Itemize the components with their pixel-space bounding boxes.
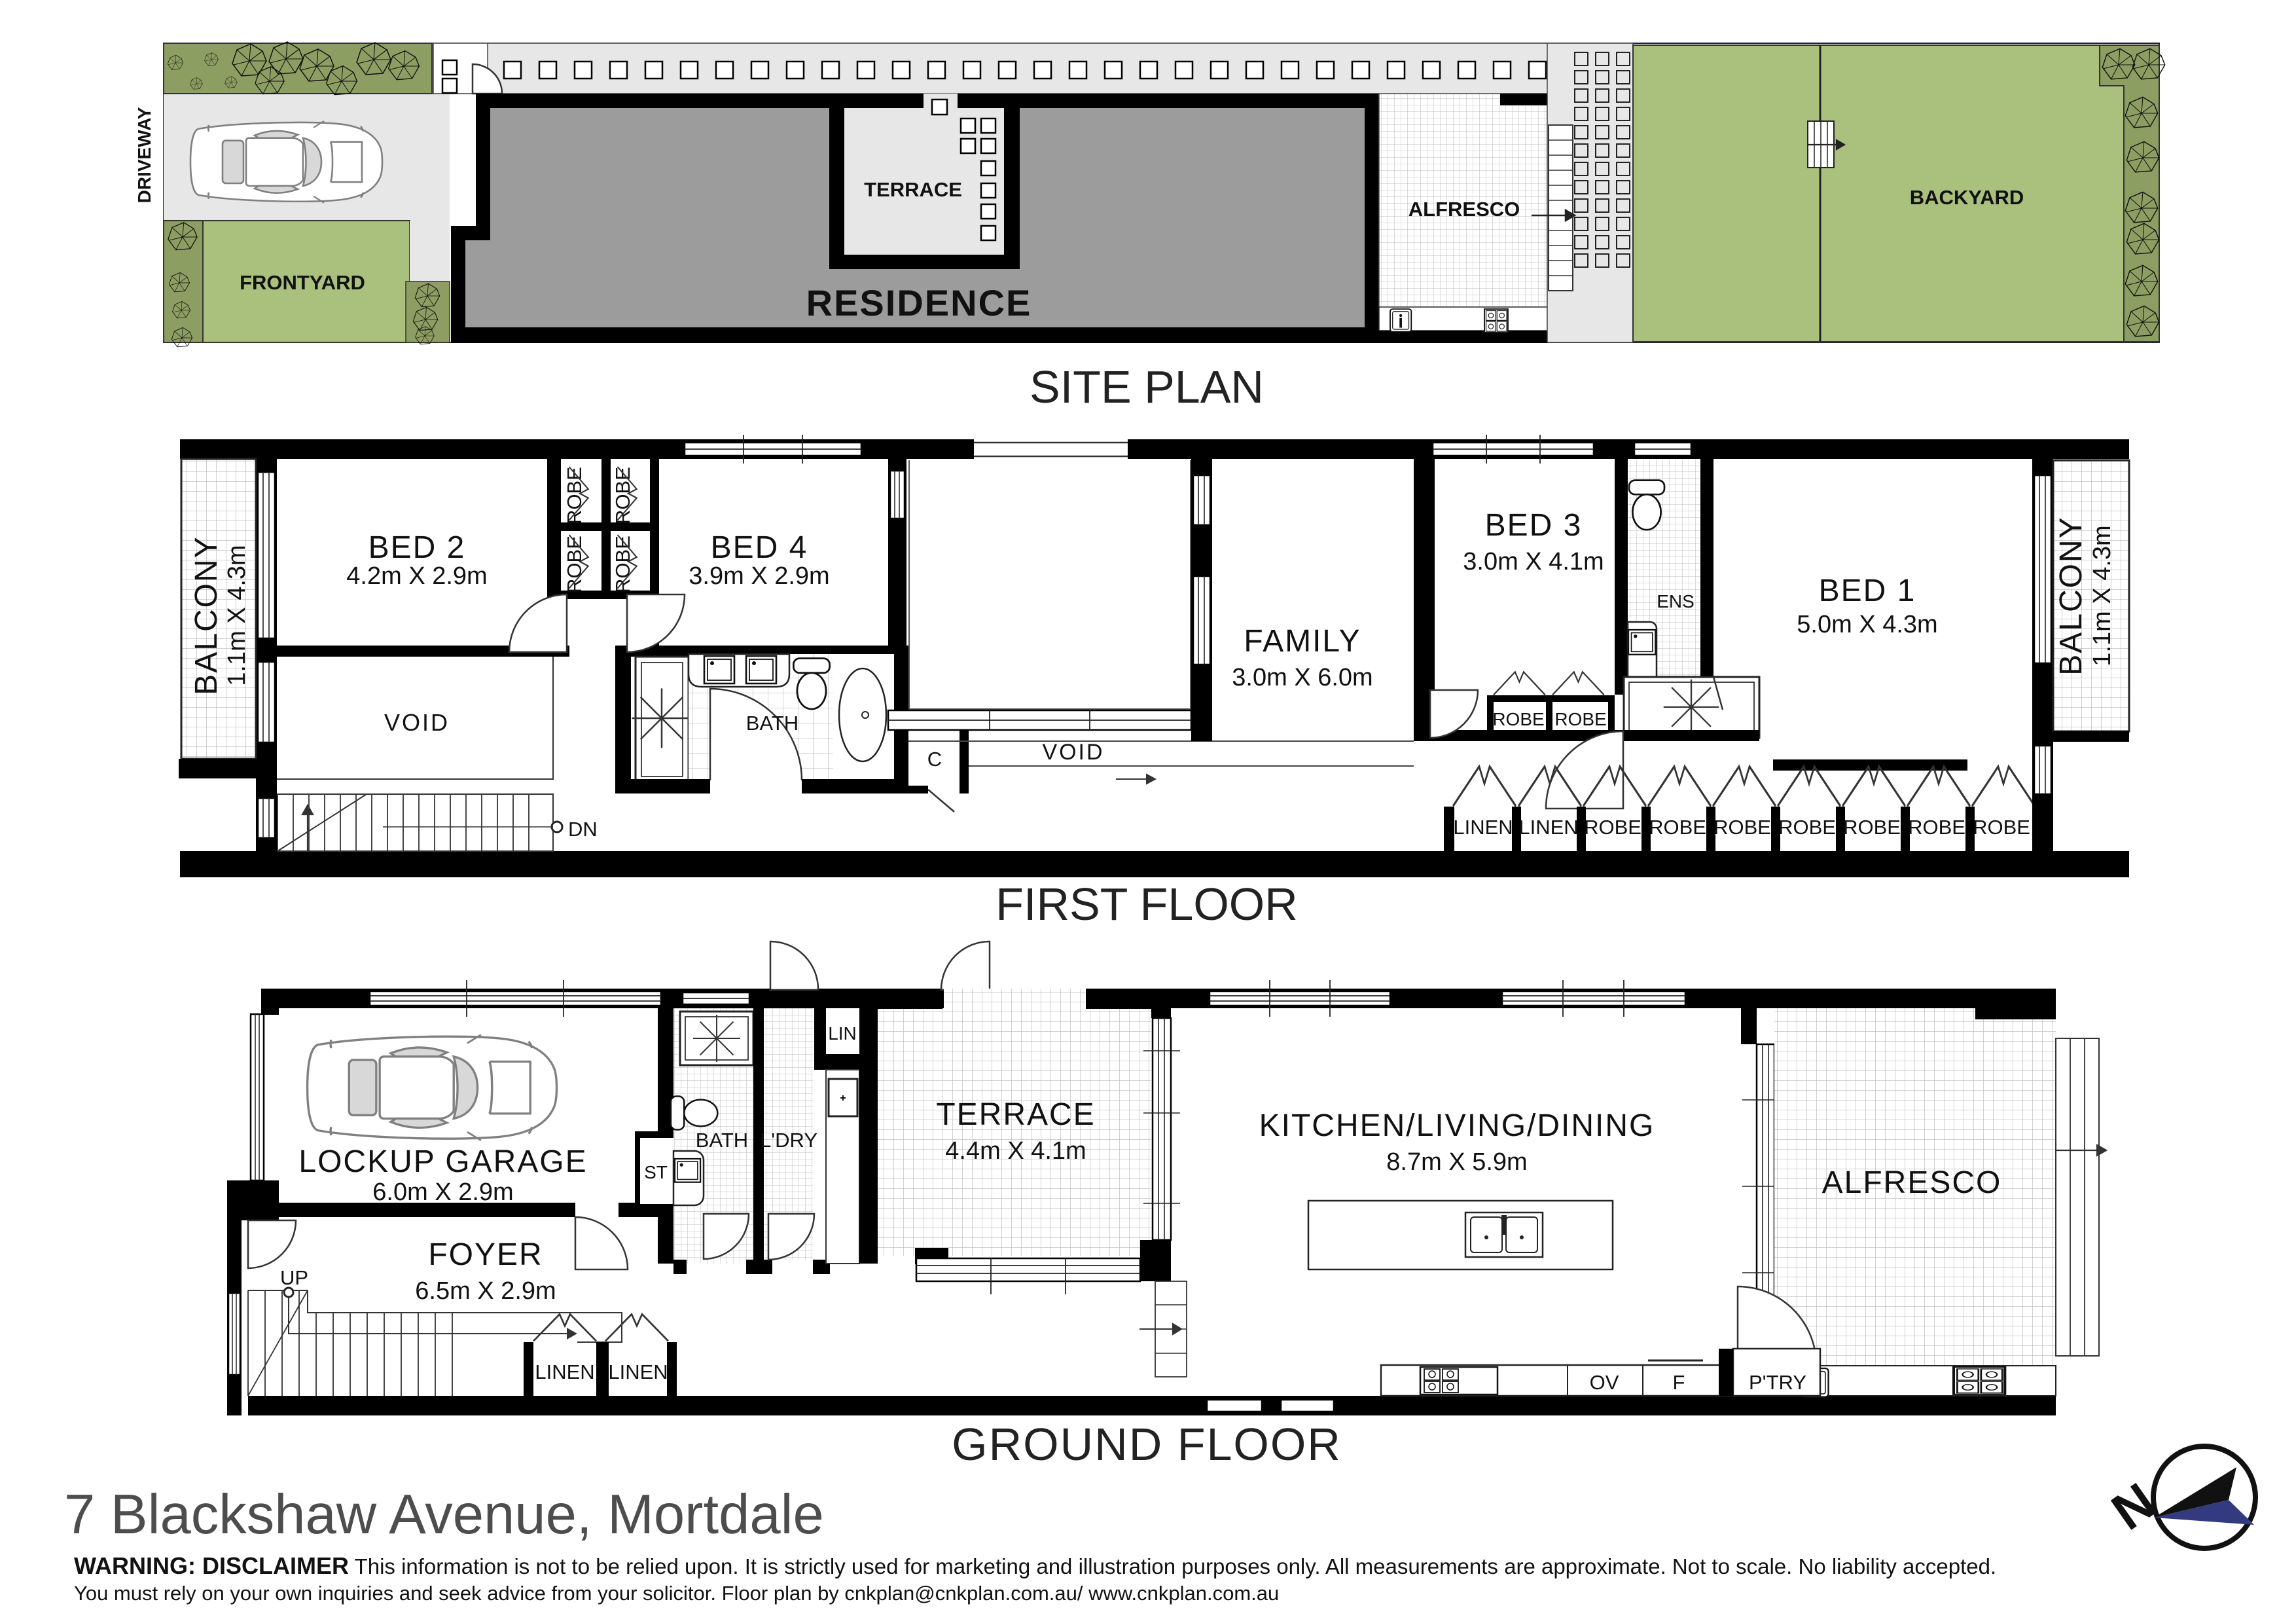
svg-text:RESIDENCE: RESIDENCE (806, 282, 1032, 323)
svg-text:ST: ST (644, 1162, 668, 1182)
svg-text:1.1m X 4.3m: 1.1m X 4.3m (2089, 525, 2116, 666)
svg-text:5.0m X 4.3m: 5.0m X 4.3m (1797, 611, 1937, 638)
svg-text:LINEN: LINEN (608, 1360, 668, 1383)
svg-text:OV: OV (1590, 1371, 1619, 1394)
svg-text:F: F (1673, 1371, 1685, 1394)
svg-text:3.9m X 2.9m: 3.9m X 2.9m (689, 562, 829, 590)
svg-text:BED 3: BED 3 (1485, 508, 1583, 543)
svg-text:LINEN: LINEN (535, 1360, 594, 1383)
svg-text:BATH: BATH (746, 712, 798, 735)
svg-text:LOCKUP GARAGE: LOCKUP GARAGE (298, 1144, 587, 1179)
svg-text:DN: DN (568, 818, 598, 841)
svg-text:ENS: ENS (1657, 591, 1695, 611)
svg-text:FOYER: FOYER (428, 1237, 543, 1272)
svg-text:3.0m X 4.1m: 3.0m X 4.1m (1463, 548, 1604, 575)
svg-text:7 Blackshaw Avenue, Mortdale: 7 Blackshaw Avenue, Mortdale (64, 1484, 824, 1546)
svg-text:ROBE: ROBE (1554, 709, 1606, 729)
svg-text:LINEN: LINEN (1518, 816, 1578, 839)
svg-text:4.4m X 4.1m: 4.4m X 4.1m (945, 1137, 1086, 1165)
svg-text:6.0m X 2.9m: 6.0m X 2.9m (372, 1178, 513, 1206)
svg-text:3.0m X 6.0m: 3.0m X 6.0m (1232, 664, 1372, 691)
svg-text:8.7m X 5.9m: 8.7m X 5.9m (1386, 1148, 1527, 1176)
svg-text:FRONTYARD: FRONTYARD (240, 271, 365, 294)
svg-text:ROBE: ROBE (1649, 816, 1706, 839)
svg-text:WARNING: DISCLAIMER This infor: WARNING: DISCLAIMER This information is … (74, 1552, 1996, 1579)
svg-text:ROBE: ROBE (1492, 709, 1544, 729)
svg-text:BALCONY: BALCONY (2054, 516, 2089, 675)
svg-text:C: C (927, 748, 942, 771)
svg-text:VOID: VOID (1042, 740, 1104, 765)
svg-text:VOID: VOID (384, 709, 450, 736)
svg-text:GROUND FLOOR: GROUND FLOOR (952, 1419, 1342, 1470)
svg-text:4.2m X 2.9m: 4.2m X 2.9m (346, 562, 487, 590)
svg-text:TERRACE: TERRACE (864, 178, 962, 201)
svg-text:LIN: LIN (828, 1023, 857, 1044)
svg-text:ROBE: ROBE (611, 536, 634, 593)
svg-text:6.5m X 2.9m: 6.5m X 2.9m (415, 1277, 556, 1305)
svg-text:TERRACE: TERRACE (936, 1097, 1095, 1132)
svg-text:ROBE: ROBE (1908, 816, 1965, 839)
svg-text:SITE PLAN: SITE PLAN (1030, 361, 1264, 412)
svg-text:DRIVEWAY: DRIVEWAY (134, 107, 154, 203)
svg-text:ALFRESCO: ALFRESCO (1822, 1165, 2002, 1200)
svg-text:ROBE: ROBE (1713, 816, 1771, 839)
svg-text:BED 1: BED 1 (1819, 574, 1916, 608)
svg-text:FAMILY: FAMILY (1244, 624, 1361, 659)
svg-text:ROBE: ROBE (1778, 816, 1836, 839)
svg-text:LINEN: LINEN (1453, 816, 1513, 839)
svg-text:ROBE: ROBE (1843, 816, 1901, 839)
svg-text:L'DRY: L'DRY (760, 1129, 817, 1152)
svg-text:BED 2: BED 2 (368, 530, 466, 565)
svg-text:You must rely on your own inqu: You must rely on your own inquiries and … (74, 1582, 1279, 1605)
svg-text:BATH: BATH (696, 1129, 748, 1152)
svg-text:BALCONY: BALCONY (189, 536, 224, 695)
svg-text:BACKYARD: BACKYARD (1910, 186, 2024, 209)
svg-text:UP: UP (280, 1266, 308, 1289)
svg-text:1.1m X 4.3m: 1.1m X 4.3m (223, 545, 251, 685)
svg-text:P'TRY: P'TRY (1749, 1371, 1806, 1394)
svg-text:ROBE: ROBE (1973, 816, 2030, 839)
svg-text:FIRST FLOOR: FIRST FLOOR (996, 879, 1298, 930)
svg-text:ROBE: ROBE (1584, 816, 1641, 839)
svg-text:ROBE: ROBE (563, 536, 586, 593)
svg-text:KITCHEN/LIVING/DINING: KITCHEN/LIVING/DINING (1259, 1108, 1655, 1143)
svg-text:ALFRESCO: ALFRESCO (1408, 198, 1520, 221)
svg-text:BED 4: BED 4 (711, 530, 808, 565)
